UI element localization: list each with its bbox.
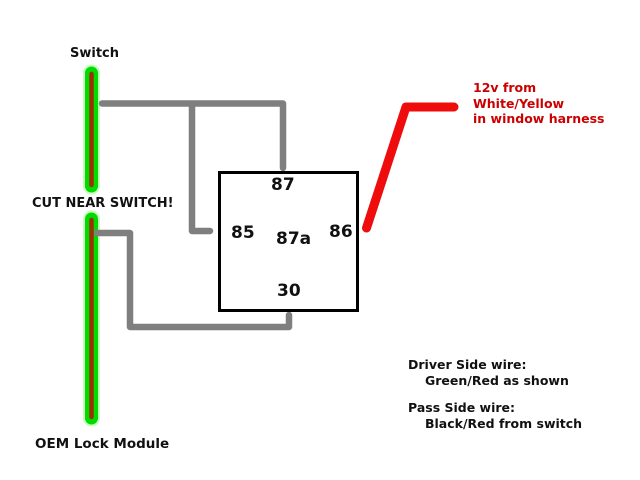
12v-source-note-line2: White/Yellow xyxy=(473,96,604,112)
pass-side-wire-note: Pass Side wire: Black/Red from switch xyxy=(408,400,582,431)
12v-source-note: 12v from White/Yellow in window harness xyxy=(473,80,604,127)
12v-source-note-line3: in window harness xyxy=(473,111,604,127)
12v-red-wire xyxy=(367,107,455,228)
pass-side-wire-title: Pass Side wire: xyxy=(408,400,582,416)
driver-side-wire-note: Driver Side wire: Green/Red as shown xyxy=(408,357,569,388)
pass-side-wire-detail: Black/Red from switch xyxy=(425,416,582,432)
relay-box: 87 85 87a 86 30 xyxy=(218,171,359,312)
relay-pin-87: 87 xyxy=(271,175,295,195)
relay-pin-30: 30 xyxy=(277,281,301,301)
relay-pin-86: 86 xyxy=(329,222,353,242)
cut-near-switch-label: CUT NEAR SWITCH! xyxy=(32,196,174,211)
relay-pin-85: 85 xyxy=(231,223,255,243)
driver-side-wire-title: Driver Side wire: xyxy=(408,357,569,373)
driver-side-wire-detail: Green/Red as shown xyxy=(425,373,569,389)
wiring-diagram: Switch CUT NEAR SWITCH! OEM Lock Module … xyxy=(0,0,640,480)
oem-lock-module-label: OEM Lock Module xyxy=(35,436,169,452)
relay-pin-87a: 87a xyxy=(276,229,311,249)
branch-to-pin85-wire xyxy=(192,104,210,232)
12v-source-note-line1: 12v from xyxy=(473,80,604,96)
switch-label: Switch xyxy=(70,46,119,61)
